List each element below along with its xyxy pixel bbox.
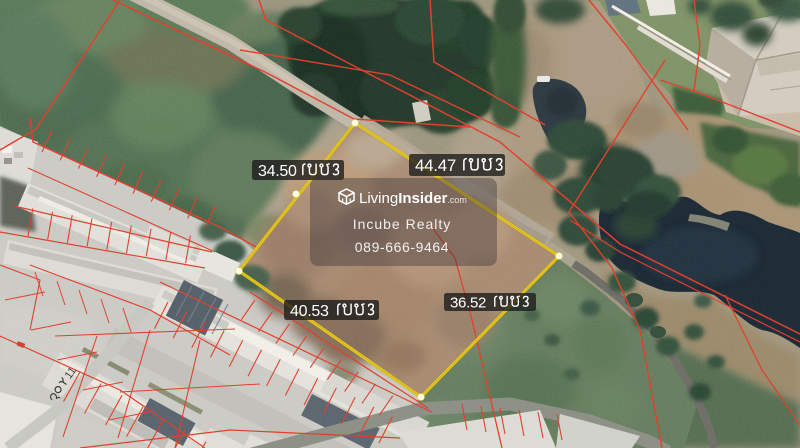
svg-text:40.53: 40.53 (290, 303, 329, 320)
svg-text:36.52: 36.52 (450, 294, 486, 311)
svg-text:Incube Realty: Incube Realty (353, 216, 452, 232)
svg-text:44.47: 44.47 (415, 156, 456, 175)
svg-text:34.50: 34.50 (258, 163, 297, 180)
svg-text:089-666-9464: 089-666-9464 (355, 239, 449, 255)
